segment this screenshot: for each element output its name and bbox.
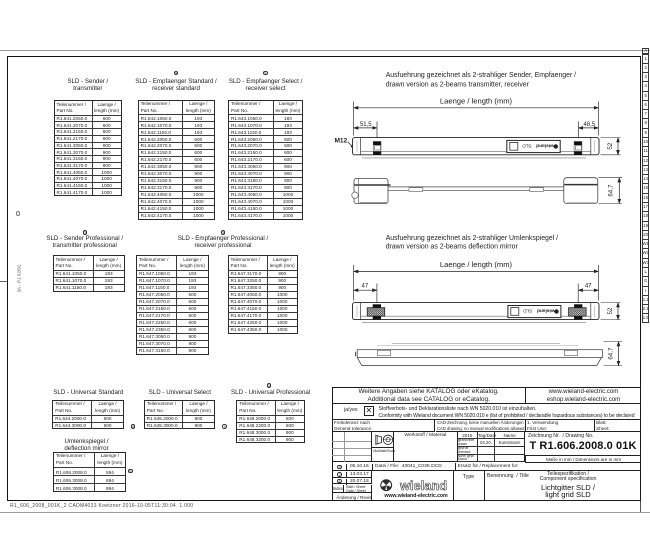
svg-text:52: 52	[607, 142, 614, 149]
svg-text:47: 47	[585, 284, 592, 290]
svg-text:drawn version as 2-beams defle: drawn version as 2-beams deflection mirr…	[386, 244, 519, 251]
svg-text:Laenge / length (mm): Laenge / length (mm)	[440, 260, 513, 269]
svg-text:64,7: 64,7	[607, 347, 614, 360]
svg-text:Ausfuehrung gezeichnet als 2-s: Ausfuehrung gezeichnet als 2-strahliger …	[386, 235, 558, 242]
svg-text:wieland: wieland	[537, 308, 556, 314]
svg-text:SLD: SLD	[522, 143, 532, 149]
svg-text:64,7: 64,7	[607, 184, 614, 197]
svg-text:wieland: wieland	[399, 479, 447, 493]
svg-text:M12: M12	[335, 138, 348, 145]
svg-text:Ausfuehrung gezeichnet als 2-s: Ausfuehrung gezeichnet als 2-strahliger …	[386, 72, 576, 79]
svg-text:48,5: 48,5	[583, 122, 595, 128]
svg-text:wieland: wieland	[536, 143, 555, 149]
svg-text:Laenge / length (mm): Laenge / length (mm)	[440, 97, 513, 106]
svg-text:52: 52	[607, 307, 614, 314]
svg-text:drawn version as 2-beams trans: drawn version as 2-beams transmitter, re…	[386, 82, 530, 89]
svg-text:SLD: SLD	[523, 308, 533, 314]
svg-text:51,5: 51,5	[360, 122, 372, 128]
svg-text:47: 47	[362, 284, 369, 290]
